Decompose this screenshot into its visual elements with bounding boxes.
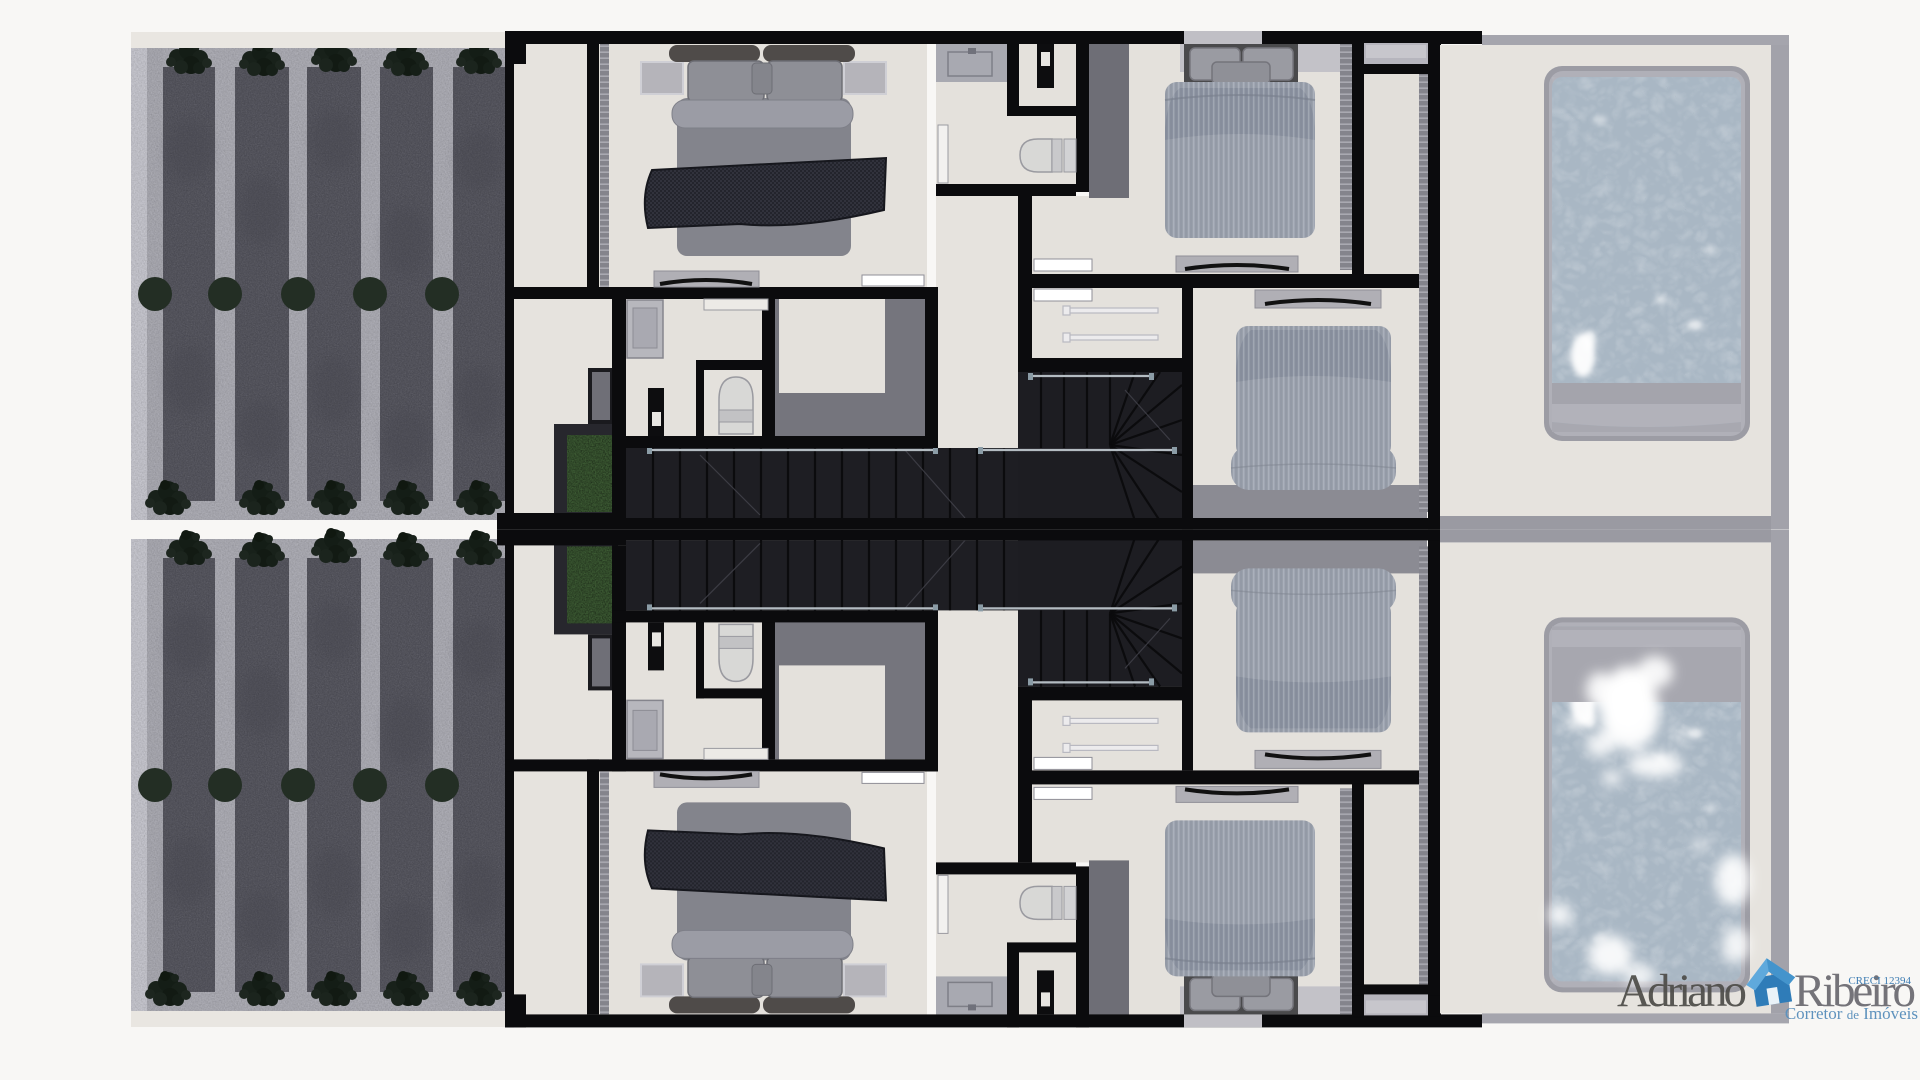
svg-text:Adriano: Adriano (1617, 965, 1747, 1017)
svg-text:CRECI 12394: CRECI 12394 (1848, 975, 1911, 987)
svg-text:Corretor de Imóveis: Corretor de Imóveis (1785, 1004, 1918, 1023)
